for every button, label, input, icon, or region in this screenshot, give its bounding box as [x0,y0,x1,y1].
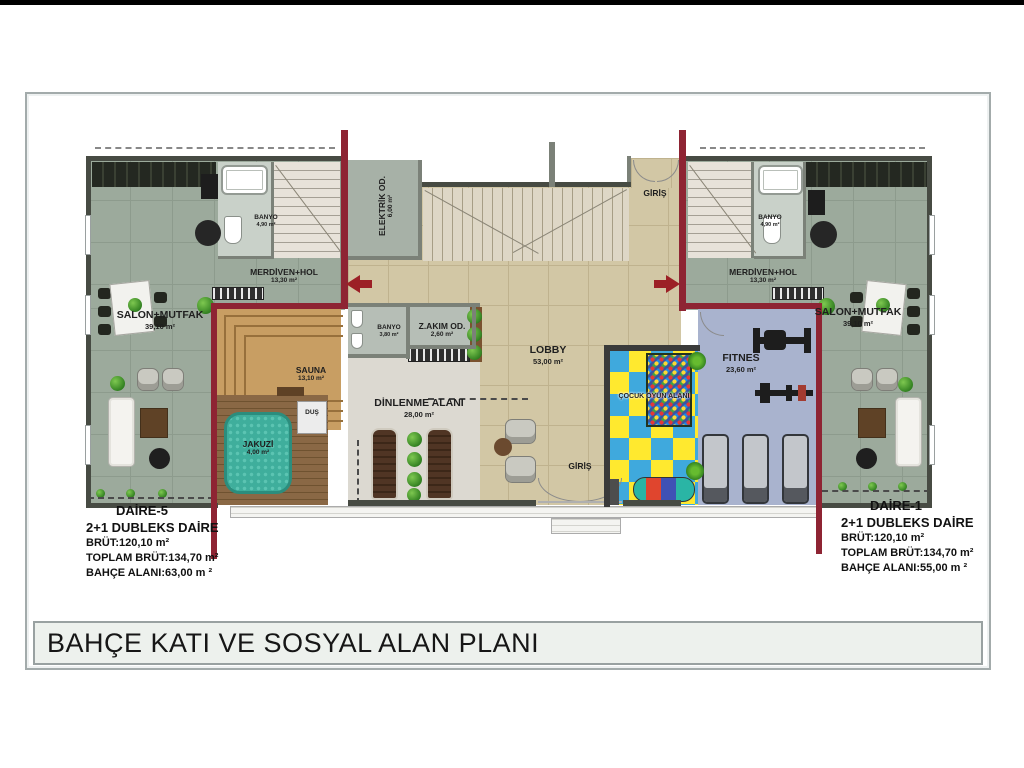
window [85,425,91,465]
apartment-type: 2+1 DUBLEKS DAİRE [86,519,198,536]
apartment-name: DAİRE-5 [86,502,198,519]
apartment-bahce-alani: BAHÇE ALANI:63,00 m ² [86,566,198,581]
maroon-wall-sauna-top [213,303,345,309]
room-label-sauna: SAUNA 13,10 m² [296,365,326,383]
room-area: 53,00 m² [530,357,567,366]
plant [407,432,422,447]
bathtub-right [758,165,803,195]
plant [110,376,125,391]
armchair [137,368,159,391]
room-area: 3,80 m² [377,332,400,339]
room-area: 39,10 m² [815,319,902,328]
room-name: SALON+MUTFAK [815,306,902,319]
room-name: GİRİŞ [643,188,666,198]
wall [751,162,754,258]
room-label-lobby: LOBBY 53,00 m² [530,344,567,366]
apartment-bahce-alani: BAHÇE ALANI:55,00 m ² [841,561,951,576]
sofa-left [108,397,135,467]
play-slide [633,477,695,502]
maroon-wall-right [679,130,686,311]
wall [604,345,610,507]
chair [98,324,111,335]
arrow-head [666,275,680,293]
room-name: SALON+MUTFAK [117,309,204,322]
wall [271,162,274,258]
room-name: BANYO [758,214,781,222]
wall [348,256,422,260]
room-label-merdiven-right: MERDİVEN+HOL 13,30 m² [729,267,797,285]
room-label-giris-bottom: GİRİŞ [568,461,591,471]
palm-tree [686,462,704,480]
window [85,295,91,335]
wall [348,354,410,358]
wall [623,500,681,506]
room-name: ÇOCUK OYUN ALANI [619,393,690,401]
room-area: 13,10 m² [296,375,326,383]
room-name: SAUNA [296,365,326,375]
side-table [494,438,512,456]
wall [683,156,932,161]
room-area: 6,00 m² [387,176,395,236]
rug [856,448,877,469]
shower-box [297,401,327,434]
maroon-wall-garden-right [816,303,822,554]
room-name: BANYO [377,324,400,332]
toilet-left [224,216,242,244]
wall [406,303,410,359]
wall [420,182,631,187]
cabinet-left [212,287,264,300]
ball-pit [646,353,692,427]
chair [850,292,863,303]
chair [907,288,920,299]
wall [604,345,700,351]
toilet [351,333,363,349]
apartment-info-right: DAİRE-1 2+1 DUBLEKS DAİRE BRÜT:120,10 m²… [841,497,951,576]
chair [98,306,111,317]
room-name: MERDİVEN+HOL [729,267,797,277]
room-label-fitnes: FITNES 23,60 m² [722,352,759,374]
gym-machine [753,328,760,353]
plant [898,377,913,392]
plant [407,452,422,467]
palm-tree [688,352,706,370]
room-label-banyo-center: BANYO 3,80 m² [377,324,400,338]
cabinet-right [772,287,824,300]
treadmill [702,434,729,504]
coffee-table [858,408,886,438]
room-label-merdiven-left: MERDİVEN+HOL 13,30 m² [250,267,318,285]
room-label-jakuzi: JAKUZİ 4,00 m² [243,439,274,457]
wall [406,345,476,349]
room-name: FITNES [722,352,759,365]
apartment-name: DAİRE-1 [841,497,951,514]
room-label-dus: DUŞ [305,409,319,417]
apartment-toplam-brut: TOPLAM BRÜT:134,70 m² [86,551,198,566]
armchair [851,368,873,391]
lobby-armchair [505,456,536,483]
room-area: 4,90 m² [254,222,277,229]
room-label-salon-left: SALON+MUTFAK 39,10 m² [117,309,204,331]
room-label-zakim: Z.AKIM OD. 2,60 m² [419,321,466,339]
room-name: DUŞ [305,409,319,417]
slide-page: BAHÇE KATI VE SOSYAL ALAN PLANI [0,0,1024,768]
apartment-type: 2+1 DUBLEKS DAİRE [841,514,951,531]
room-area: 13,30 m² [250,277,318,285]
plan-title: BAHÇE KATI VE SOSYAL ALAN PLANI [35,623,981,663]
armchair [876,368,898,391]
room-name: GİRİŞ [568,461,591,471]
room-label-dinlenme: DİNLENME ALANI 28,00 m² [374,397,463,419]
apartment-toplam-brut: TOPLAM BRÜT:134,70 m² [841,546,951,561]
maroon-wall-fitness-top [679,303,820,309]
wall [86,156,347,161]
room-area: 2,60 m² [419,331,466,339]
boiler-right [810,221,837,248]
weight-plate [786,385,792,401]
room-label-banyo-left: BANYO 4,90 m² [254,214,277,228]
room-label-giris-top: GİRİŞ [643,188,666,198]
room-name: ELEKTRİK OD. [377,176,387,236]
bathtub-left [221,165,268,195]
wall [418,160,422,260]
room-name: DİNLENME ALANI [374,397,463,410]
window [85,215,91,255]
wall [754,256,806,259]
room-label-salon-right: SALON+MUTFAK 39,10 m² [815,306,902,328]
appliance-left [201,174,218,199]
terrace-steps [230,506,818,518]
room-area: 4,90 m² [758,222,781,229]
treadmill [782,434,809,504]
wall [472,303,476,347]
room-name: LOBBY [530,344,567,357]
wall [218,256,274,259]
room-name: JAKUZİ [243,439,274,449]
top-black-bar [0,0,1024,5]
room-area: 39,10 m² [117,322,204,331]
window [929,215,935,255]
wall [549,142,555,187]
room-name: Z.AKIM OD. [419,321,466,331]
rug [149,448,170,469]
gym-seat [760,383,770,403]
entrance-arrow-right [652,275,680,293]
room-label-elektrik: ELEKTRİK OD. 6,00 m² [377,176,395,236]
lounger [371,428,398,500]
arrow-tail [654,280,667,288]
room-area: 28,00 m² [374,410,463,419]
room-area: 13,30 m² [729,277,797,285]
plant [407,472,422,487]
weight-plate [798,385,806,401]
lobby-staircase [423,188,629,261]
chair [907,324,920,335]
garden-dashed-line [822,490,930,492]
sauna-heater [277,387,304,396]
entrance-arrow-left [346,275,374,293]
room-label-banyo-right: BANYO 4,90 m² [758,214,781,228]
appliance-right [808,190,825,215]
sink [351,310,363,328]
chair [907,306,920,317]
terrace-dashed-line [95,147,335,149]
room-name: MERDİVEN+HOL [250,267,318,277]
sofa-right [895,397,922,467]
wall [348,500,536,506]
terrace-dashed-line [700,147,925,149]
chair [154,292,167,303]
wall [348,303,480,307]
apartment-info-left: DAİRE-5 2+1 DUBLEKS DAİRE BRÜT:120,10 m²… [86,502,198,581]
dashed-line [357,440,359,504]
room-area: 23,60 m² [722,365,759,374]
room-area: 4,00 m² [243,449,274,457]
entry-steps [551,518,621,534]
boiler-left [195,220,221,246]
arrow-tail [359,280,372,288]
treadmill [742,434,769,504]
garden-dashed-line [88,497,214,499]
lounger [426,428,453,500]
wall [803,162,806,258]
room-label-cocuk: ÇOCUK OYUN ALANI [619,393,690,401]
kitchen-counter-left [92,162,216,187]
kitchen-counter-right [806,162,927,187]
gym-bench [764,330,786,350]
coffee-table [140,408,168,438]
gym-machine [804,328,811,353]
room-name: BANYO [254,214,277,222]
armchair [162,368,184,391]
window [929,295,935,335]
title-bar: BAHÇE KATI VE SOSYAL ALAN PLANI [33,621,983,665]
apartment-brut: BRÜT:120,10 m² [86,536,198,551]
apartment-brut: BRÜT:120,10 m² [841,531,951,546]
lockers [408,347,470,362]
window [929,425,935,465]
arrow-head [346,275,360,293]
